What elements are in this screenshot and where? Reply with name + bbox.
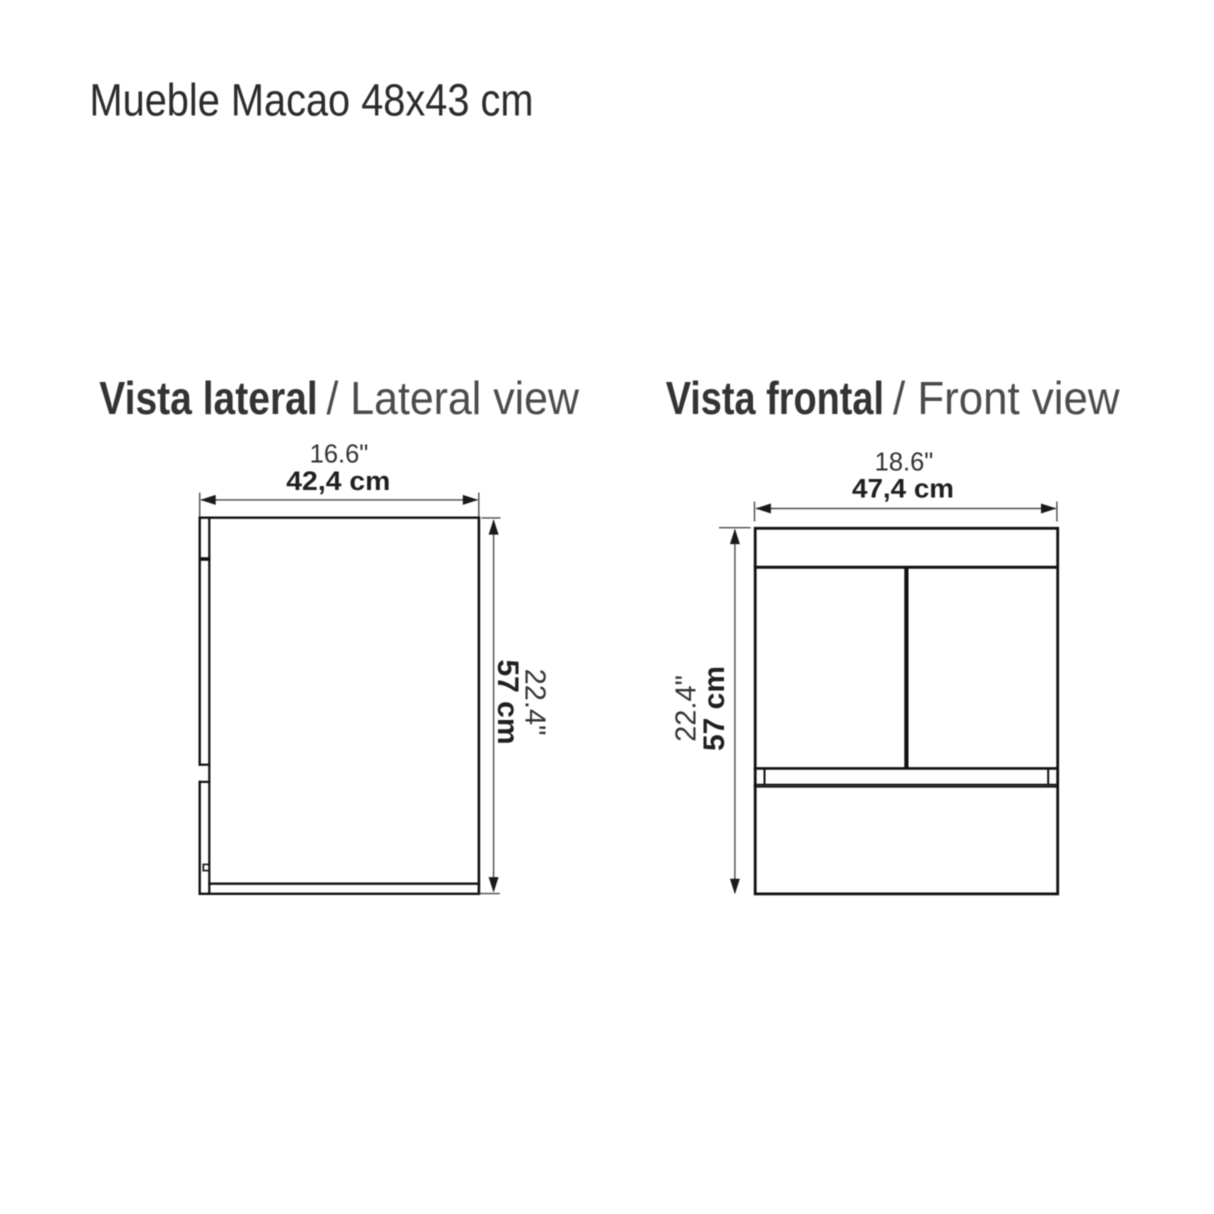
svg-text:47,4 cm: 47,4 cm: [852, 474, 954, 504]
svg-text:Vista frontal: Vista frontal: [666, 372, 884, 424]
svg-text:18.6": 18.6": [875, 449, 934, 477]
svg-text:Mueble Macao 48x43 cm: Mueble Macao 48x43 cm: [90, 75, 534, 126]
svg-text:57 cm: 57 cm: [491, 659, 524, 744]
svg-text:16.6": 16.6": [310, 441, 369, 469]
svg-text:42,4 cm: 42,4 cm: [286, 466, 390, 496]
svg-text:/ Lateral view: / Lateral view: [327, 372, 580, 424]
svg-text:/ Front view: / Front view: [893, 372, 1120, 424]
svg-text:Vista lateral: Vista lateral: [99, 372, 317, 424]
svg-text:57 cm: 57 cm: [698, 666, 731, 751]
